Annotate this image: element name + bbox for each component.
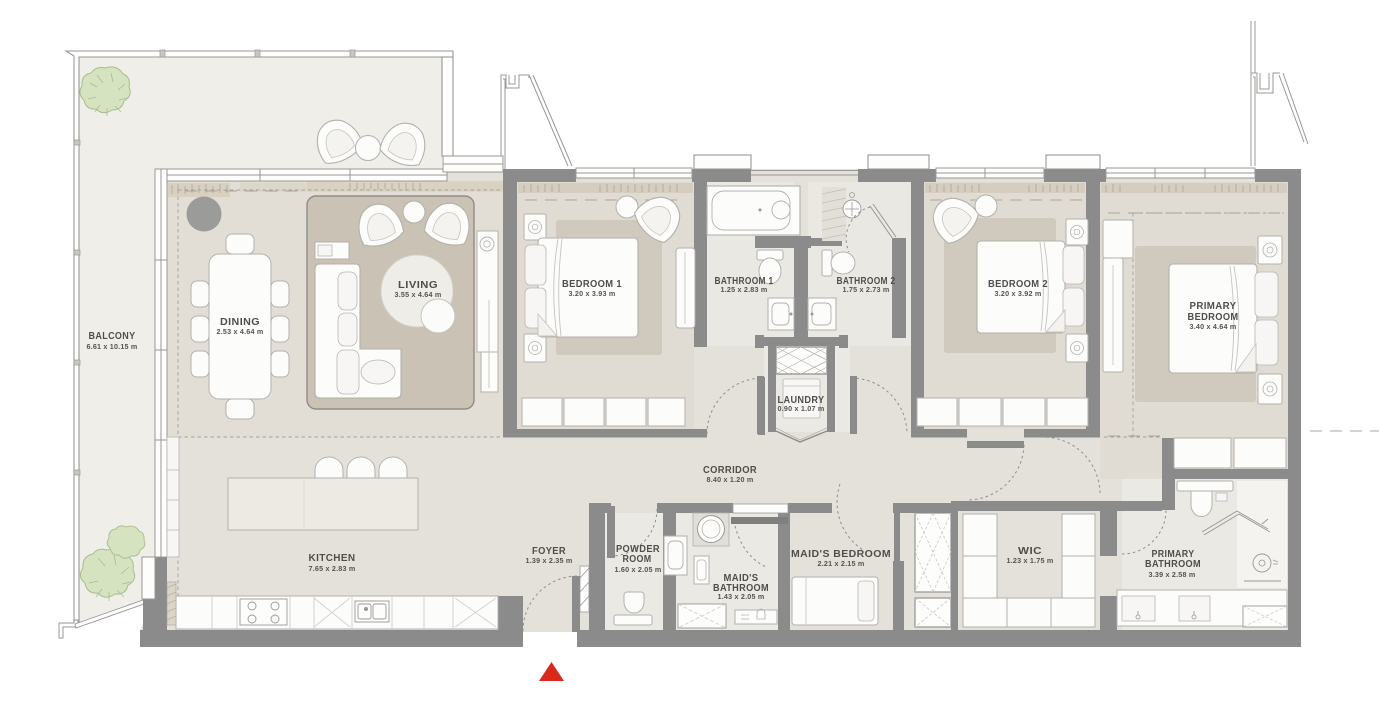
svg-text:BATHROOM: BATHROOM xyxy=(1145,559,1201,570)
svg-text:3.39 x 2.58 m: 3.39 x 2.58 m xyxy=(1149,572,1196,579)
svg-text:MAID'S BEDROOM: MAID'S BEDROOM xyxy=(791,549,891,560)
svg-text:2.53 x 4.64 m: 2.53 x 4.64 m xyxy=(217,329,264,336)
svg-text:BEDROOM: BEDROOM xyxy=(1188,312,1239,323)
svg-text:KITCHEN: KITCHEN xyxy=(309,553,356,564)
svg-text:8.40 x 1.20 m: 8.40 x 1.20 m xyxy=(707,477,754,484)
svg-text:LAUNDRY: LAUNDRY xyxy=(778,395,825,406)
svg-text:WIC: WIC xyxy=(1018,546,1042,557)
svg-text:DINING: DINING xyxy=(220,317,260,328)
svg-text:3.20 x 3.92 m: 3.20 x 3.92 m xyxy=(995,291,1042,298)
svg-text:1.60 x 2.05 m: 1.60 x 2.05 m xyxy=(615,567,662,574)
svg-text:3.55 x 4.64 m: 3.55 x 4.64 m xyxy=(395,292,442,299)
svg-text:2.21 x 2.15 m: 2.21 x 2.15 m xyxy=(818,561,865,568)
svg-text:3.40 x 4.64 m: 3.40 x 4.64 m xyxy=(1190,324,1237,331)
svg-text:FOYER: FOYER xyxy=(532,546,566,557)
svg-text:BATHROOM 1: BATHROOM 1 xyxy=(715,276,774,287)
svg-text:BATHROOM: BATHROOM xyxy=(713,583,769,594)
svg-text:1.43 x 2.05 m: 1.43 x 2.05 m xyxy=(718,594,765,601)
svg-text:3.20 x 3.93 m: 3.20 x 3.93 m xyxy=(569,291,616,298)
svg-text:CORRIDOR: CORRIDOR xyxy=(703,465,757,476)
svg-text:BATHROOM 2: BATHROOM 2 xyxy=(837,276,896,287)
svg-text:ROOM: ROOM xyxy=(623,554,652,565)
svg-text:6.61 x 10.15 m: 6.61 x 10.15 m xyxy=(87,344,138,351)
svg-text:7.65 x 2.83 m: 7.65 x 2.83 m xyxy=(309,566,356,573)
svg-text:1.23 x 1.75 m: 1.23 x 1.75 m xyxy=(1007,558,1054,565)
svg-text:1.75 x 2.73 m: 1.75 x 2.73 m xyxy=(843,287,890,294)
svg-text:LIVING: LIVING xyxy=(398,280,438,291)
svg-text:BEDROOM 2: BEDROOM 2 xyxy=(988,279,1048,290)
svg-text:BALCONY: BALCONY xyxy=(89,331,136,342)
svg-text:1.25 x 2.83 m: 1.25 x 2.83 m xyxy=(721,287,768,294)
svg-text:0.90 x 1.07 m: 0.90 x 1.07 m xyxy=(778,406,825,413)
svg-text:PRIMARY: PRIMARY xyxy=(1190,301,1237,312)
svg-text:BEDROOM 1: BEDROOM 1 xyxy=(562,279,622,290)
svg-text:1.39 x 2.35 m: 1.39 x 2.35 m xyxy=(526,558,573,565)
